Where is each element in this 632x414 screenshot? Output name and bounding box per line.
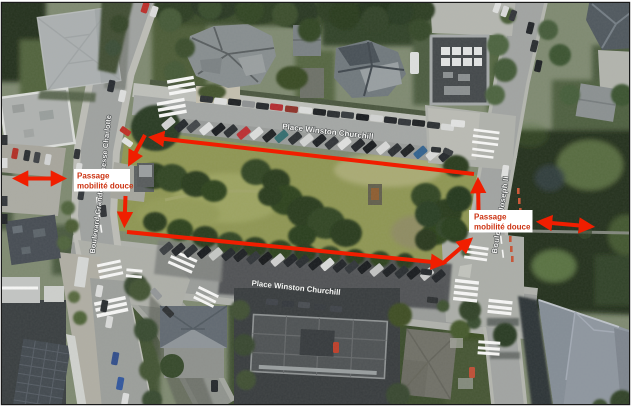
svg-text:mobilité douce: mobilité douce <box>77 182 134 191</box>
svg-text:Passage: Passage <box>474 213 507 222</box>
svg-text:Passage: Passage <box>77 172 110 181</box>
svg-text:mobilité douce: mobilité douce <box>474 223 531 232</box>
